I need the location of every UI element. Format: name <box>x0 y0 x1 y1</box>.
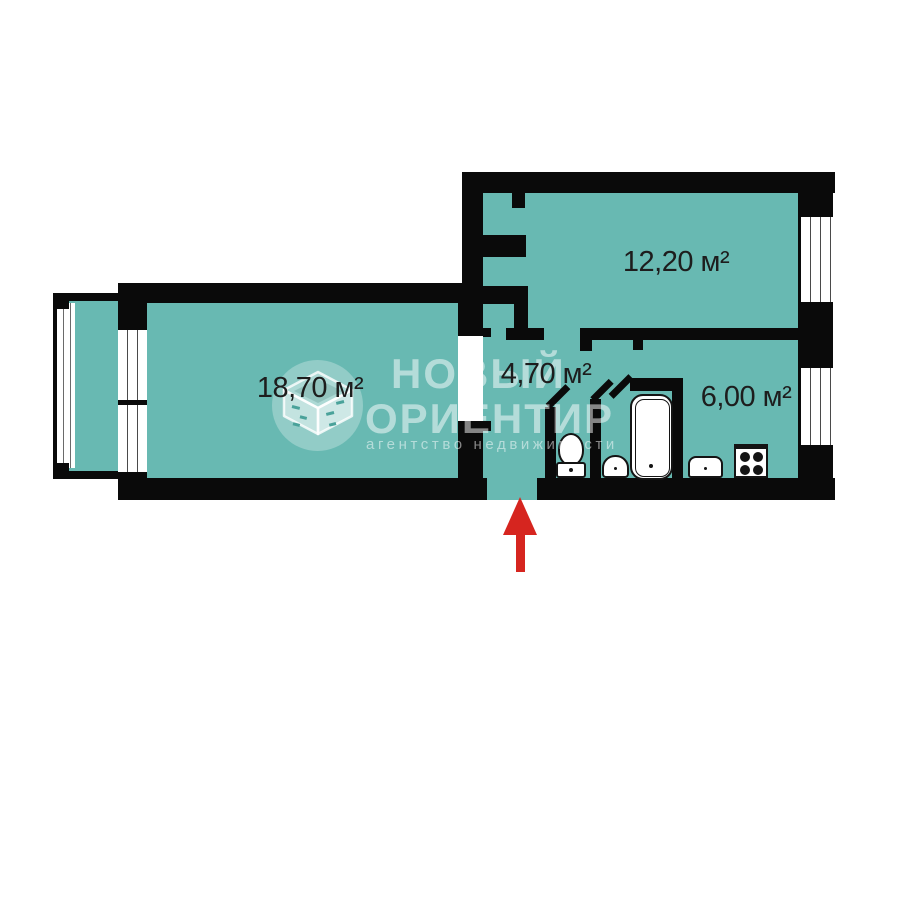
bathtub-drain-dot <box>649 464 653 468</box>
wall-wc-right <box>590 399 601 478</box>
toilet-dot <box>569 468 573 472</box>
door-frame-stub-bottom <box>483 421 491 431</box>
balcony-wall-top <box>53 293 118 301</box>
bath-door-frame-stub <box>633 340 643 350</box>
wall-left-upper-section <box>462 193 483 305</box>
balcony-glazing <box>57 303 75 468</box>
entrance-arrow-icon <box>503 497 537 535</box>
stove-icon <box>734 444 768 478</box>
balcony-block-divider <box>118 400 147 405</box>
kitchen-sink-dot <box>704 467 707 470</box>
wall-bottom-left <box>118 478 487 500</box>
closet-divider-upper <box>483 235 526 257</box>
wall-hallway-left-upper <box>458 303 483 336</box>
balcony-glazing-cap-bottom <box>57 463 69 471</box>
kitchen-area-label: 6,00 м² <box>666 381 826 414</box>
entrance-arrow-stem <box>516 531 525 572</box>
closet-wall-stub-top <box>512 193 525 208</box>
stove-burner-3 <box>740 465 750 475</box>
stove-burner-2 <box>753 452 763 462</box>
hallway-area-label: 4,70 м² <box>466 358 626 391</box>
closet-wall-vertical <box>514 286 528 334</box>
wall-bottom-right <box>537 478 835 500</box>
wash-basin-dot <box>614 467 617 470</box>
wall-wc-left <box>545 407 556 478</box>
window-bedroom <box>801 217 833 302</box>
wall-top <box>462 172 835 193</box>
wall-hallway-left-lower <box>458 421 483 478</box>
wall-kitchen-top <box>580 328 798 340</box>
balcony-glazing-cap-top <box>57 301 69 309</box>
balcony-wall-bottom <box>53 471 118 479</box>
wall-living-top <box>118 283 462 303</box>
door-frame-stub-top <box>483 328 491 337</box>
hall-door-frame-stub <box>580 340 592 351</box>
floor-plan-page: НОВЫЙ ОРИЕНТИР агентство недвижимости 18… <box>0 0 897 900</box>
stove-burner-4 <box>753 465 763 475</box>
living-room-area-label: 18,70 м² <box>230 372 390 405</box>
bedroom-area-label: 12,20 м² <box>596 246 756 279</box>
stove-burner-1 <box>740 452 750 462</box>
closet-wall-bottom <box>506 328 544 340</box>
balcony-floor <box>69 299 118 473</box>
